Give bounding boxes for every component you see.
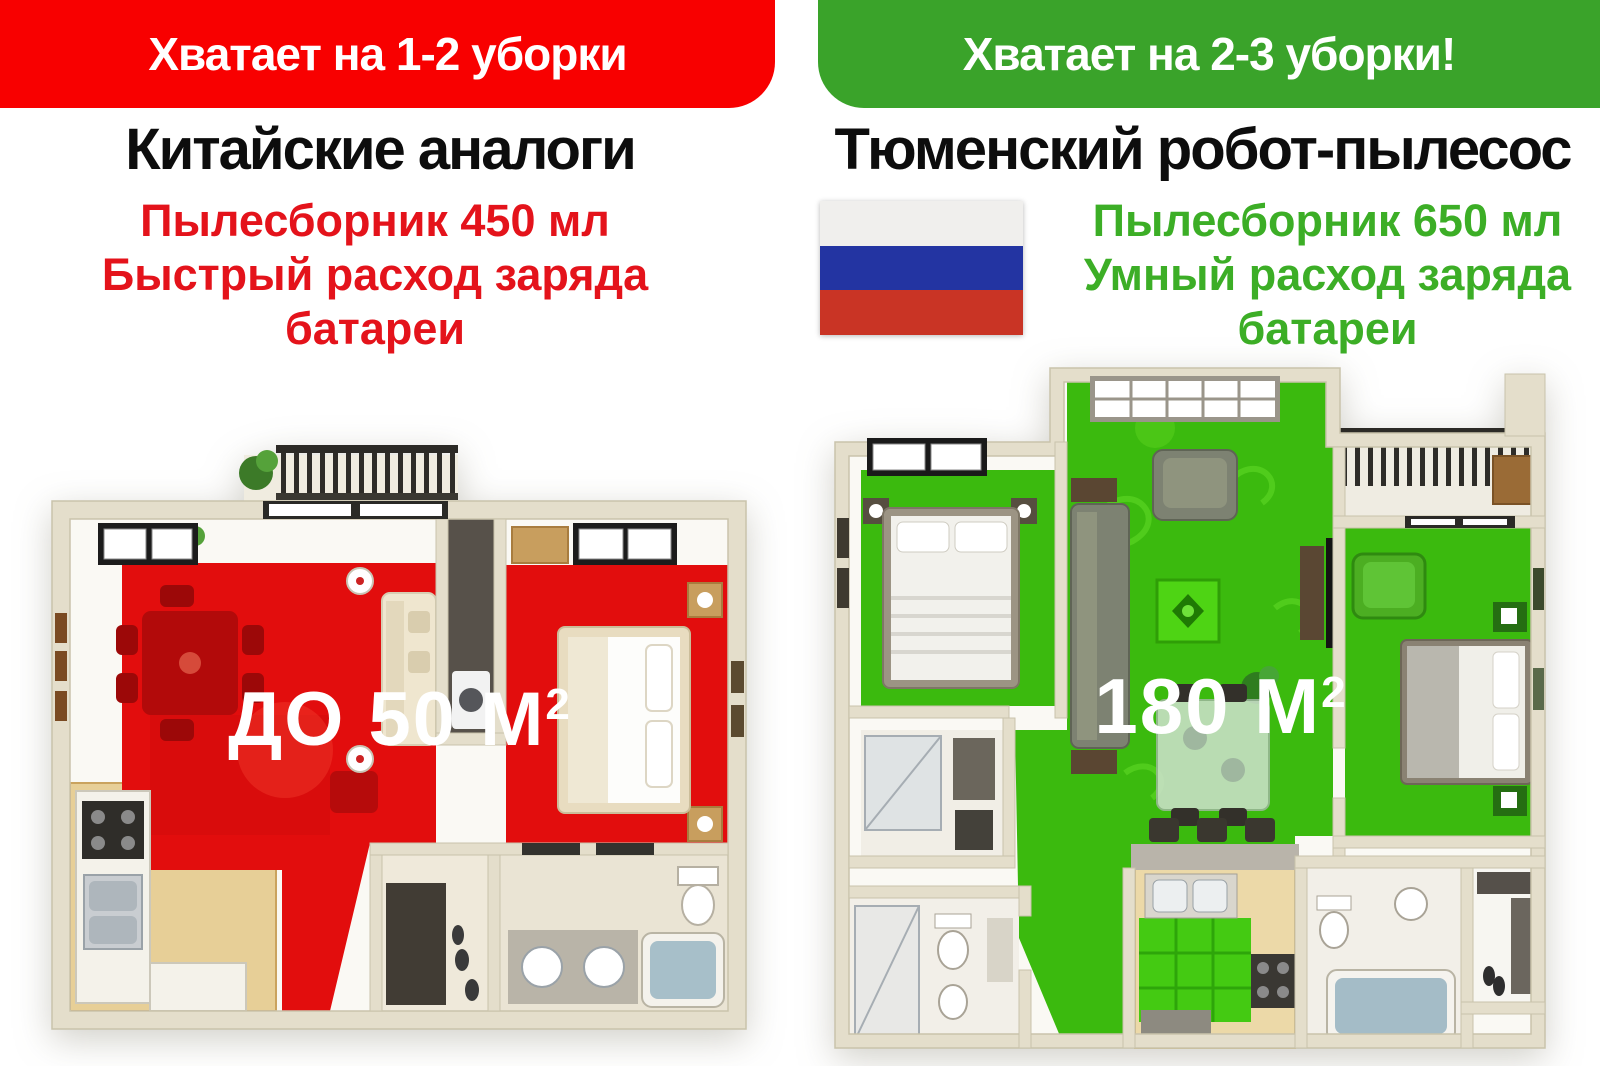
bar-stool — [1245, 818, 1275, 842]
russia-flag-icon — [820, 201, 1023, 335]
right-feature-line: Умный расход заряда — [1055, 248, 1600, 302]
bed — [883, 508, 1019, 688]
bedroom-two-window — [1405, 516, 1515, 528]
vanity — [987, 918, 1013, 982]
bathroom — [500, 855, 728, 1011]
tv-console — [1300, 538, 1333, 648]
left-feature-line: Пылесборник 450 мл — [70, 194, 680, 248]
dresser — [512, 527, 568, 563]
shower — [855, 906, 919, 1040]
hall-closet — [382, 855, 488, 1011]
cabinet — [953, 738, 995, 800]
bed — [1401, 640, 1533, 784]
left-area-label: ДО 50 М2 — [228, 677, 572, 762]
armchair — [1153, 450, 1237, 520]
right-features: Пылесборник 650 мл Умный расход заряда б… — [1055, 194, 1600, 356]
left-banner-label: Хватает на 1-2 уборки — [148, 27, 626, 81]
toilet — [678, 867, 718, 925]
left-feature-line: батареи — [70, 302, 680, 356]
bedroom-one-skylight — [867, 438, 987, 476]
right-floor-plan: 180 М2 — [805, 358, 1565, 1058]
bar-stool — [1149, 818, 1179, 842]
bathtub — [642, 933, 724, 1007]
kitchen-sink — [1145, 874, 1237, 918]
kitchen-green-tiles — [1139, 918, 1251, 1022]
kitchen — [1131, 818, 1299, 1048]
bathroom-left — [849, 898, 1019, 1048]
ottoman — [330, 771, 378, 813]
left-balcony — [239, 445, 458, 503]
left-title: Китайские аналоги — [0, 116, 760, 183]
coffee-table — [1157, 580, 1219, 642]
comparison-infographic: Хватает на 1-2 уборки Хватает на 2-3 убо… — [0, 0, 1600, 1066]
sink — [584, 947, 624, 987]
bar-counter — [1131, 844, 1299, 870]
stove — [1251, 954, 1295, 1008]
left-floor-plan: ДО 50 М2 — [30, 415, 760, 1035]
right-area-label: 180 М2 — [1094, 662, 1347, 750]
living-window — [1090, 376, 1280, 422]
bathroom-right — [1307, 868, 1461, 1048]
bathtub — [1327, 970, 1455, 1042]
shower-room — [861, 730, 1003, 856]
left-features: Пылесборник 450 мл Быстрый расход заряда… — [70, 194, 680, 356]
flag-red-stripe — [820, 290, 1023, 335]
toilet — [935, 914, 971, 969]
bedroom-skylight-window — [573, 523, 677, 565]
skylight-window — [98, 523, 198, 565]
right-title: Тюменский робот-пылесос — [805, 116, 1600, 183]
stove — [82, 801, 144, 859]
bed — [558, 627, 690, 813]
flag-white-stripe — [820, 201, 1023, 246]
toilet — [1317, 896, 1351, 948]
bidet — [939, 985, 967, 1019]
wardrobe — [386, 883, 446, 1005]
right-feature-line: Пылесборник 650 мл — [1055, 194, 1600, 248]
right-banner-label: Хватает на 2-3 уборки! — [963, 27, 1456, 81]
left-feature-line: Быстрый расход заряда — [70, 248, 680, 302]
bedroom-one — [863, 498, 1037, 688]
right-feature-line: батареи — [1055, 302, 1600, 356]
kitchen-sink — [84, 875, 142, 949]
living-window — [263, 501, 448, 519]
flag-blue-stripe — [820, 246, 1023, 291]
balcony-chair — [1493, 456, 1533, 504]
right-banner: Хватает на 2-3 уборки! — [818, 0, 1600, 108]
armchair — [1353, 554, 1425, 618]
left-banner: Хватает на 1-2 уборки — [0, 0, 775, 108]
sink — [1395, 888, 1427, 920]
sink — [522, 947, 562, 987]
bar-stool — [1197, 818, 1227, 842]
